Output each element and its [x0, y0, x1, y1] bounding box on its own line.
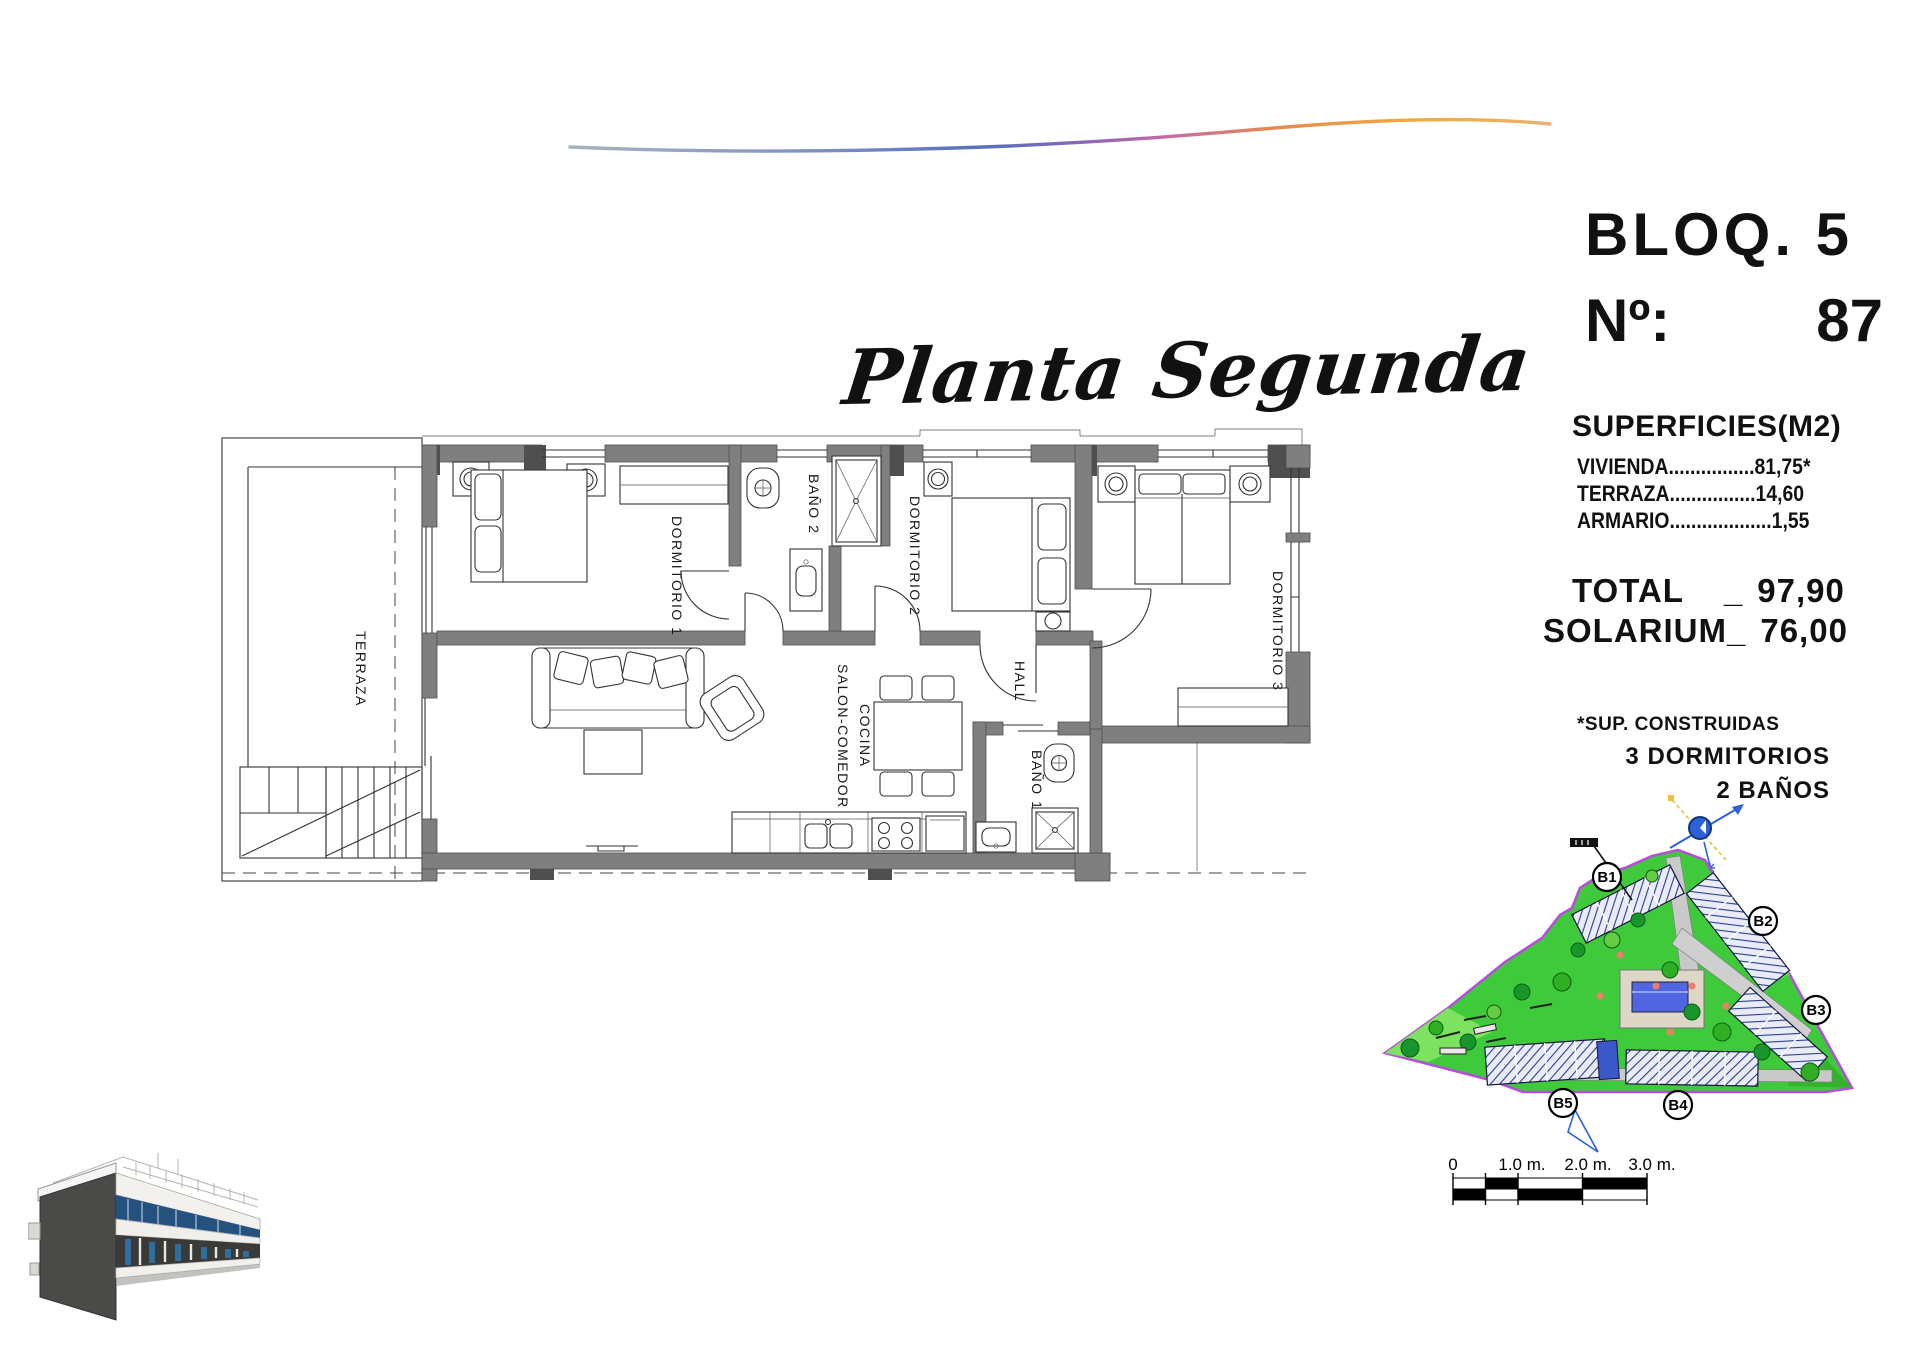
plan-sheet: Planta Segunda BLOQ. 5 Nº: 87 SUPERFICIE…: [0, 0, 1920, 1356]
unit-number-value: 87: [1816, 286, 1883, 355]
svg-text:B2: B2: [1753, 913, 1772, 930]
sofa: [532, 648, 704, 728]
bathroom1-fixtures: [976, 744, 1078, 853]
room-label-salon-line2: COCINA: [857, 704, 873, 767]
surfaces-title: SUPERFICIES(M2): [1572, 410, 1841, 444]
total-underscore: _: [1724, 572, 1743, 609]
room-label-bano2: BAÑO 2: [806, 474, 822, 534]
surface-row-armario: ARMARIO...................1,55: [1577, 508, 1809, 534]
room-label-dormitorio3: DORMITORIO 3: [1270, 571, 1286, 691]
dark-facade: [40, 1173, 116, 1320]
svg-text:B3: B3: [1806, 1002, 1825, 1019]
unit-number-row: Nº: 87: [1585, 286, 1883, 355]
scale-label-2: 2.0 m.: [1564, 1155, 1611, 1174]
block-label-b4: B4: [1664, 1091, 1692, 1119]
bedrooms-count: 3 DORMITORIOS: [1530, 743, 1830, 771]
coffee-table: [584, 730, 642, 774]
site-plan: B1 B2 B3 B4 B5 0 1.0 m. 2.0 m.: [1370, 780, 1920, 1260]
solarium-row: SOLARIUM_76,00: [1543, 612, 1848, 650]
bed-dormitorio1: [453, 462, 728, 582]
surfaces-footnote: *SUP. CONSTRUIDAS: [1577, 714, 1779, 736]
scale-label-0: 0: [1448, 1155, 1457, 1174]
scale-label-1: 1.0 m.: [1498, 1155, 1545, 1174]
room-label-salon-line1: SALON-COMEDOR: [835, 664, 851, 809]
room-label-bano1: BAÑO 1: [1029, 750, 1045, 810]
swoosh-curve: [570, 120, 1550, 151]
gradient-swoosh: [560, 82, 1560, 172]
roof-overhang-line: [422, 429, 1302, 445]
bed-dormitorio2: [924, 462, 1070, 631]
floor-plan: TERRAZA DORMITORIO 1 BAÑO 2 DORMITORIO 2…: [220, 426, 1312, 888]
surface-row-vivienda: VIVIENDA................81,75*: [1577, 454, 1810, 480]
surface-row-terraza: TERRAZA................14,60: [1577, 481, 1804, 507]
block-label-b5: B5: [1549, 1089, 1577, 1117]
room-label-hall: HALL: [1012, 661, 1028, 702]
svg-text:B4: B4: [1668, 1097, 1688, 1114]
site-pointer: [1568, 1110, 1598, 1152]
room-label-dormitorio2: DORMITORIO 2: [907, 496, 923, 616]
block-label-b2: B2: [1749, 907, 1777, 935]
svg-text:B5: B5: [1553, 1095, 1572, 1112]
solarium-label: SOLARIUM_: [1543, 612, 1746, 649]
block-label: BLOQ. 5: [1585, 200, 1853, 269]
front-facade: [116, 1173, 260, 1286]
scale-label-3: 3.0 m.: [1628, 1155, 1675, 1174]
dining-table: [874, 676, 962, 796]
room-label-terraza: TERRAZA: [353, 631, 369, 707]
unit-number-label: Nº:: [1585, 286, 1670, 355]
page-title: Planta Segunda: [839, 319, 1536, 422]
bed-dormitorio3: [1098, 466, 1288, 726]
solarium-value: 76,00: [1760, 612, 1848, 649]
facade-box-small: [30, 1263, 39, 1275]
tv-unit: [586, 846, 638, 851]
total-row: TOTAL_97,90: [1572, 572, 1845, 610]
building-render: [28, 1145, 588, 1355]
svg-text:B1: B1: [1597, 869, 1616, 886]
block-label-b1: B1: [1593, 863, 1621, 891]
total-value: 97,90: [1757, 572, 1845, 609]
block-label-b3: B3: [1802, 996, 1830, 1024]
kitchen-counter: [732, 812, 966, 853]
room-label-dormitorio1: DORMITORIO 1: [669, 516, 685, 636]
facade-box: [28, 1223, 40, 1239]
scale-bar: 0 1.0 m. 2.0 m. 3.0 m.: [1448, 1155, 1675, 1205]
armchair: [696, 672, 767, 745]
total-label: TOTAL: [1572, 572, 1684, 609]
